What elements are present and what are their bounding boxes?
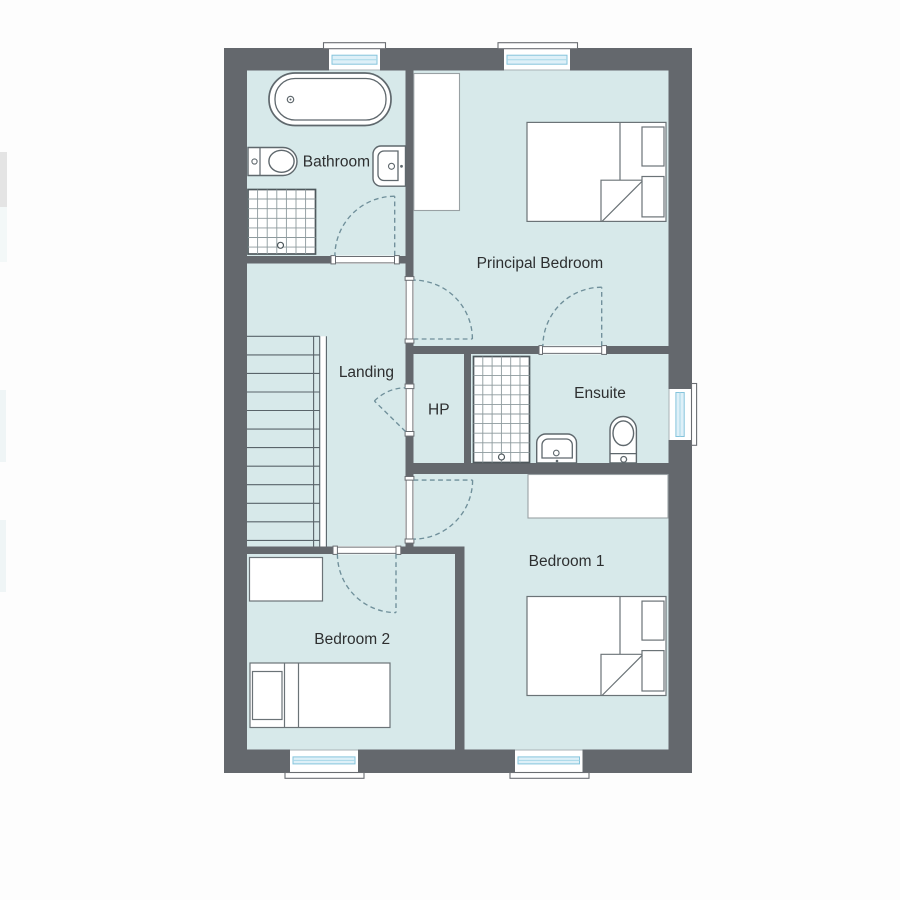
svg-text:HP: HP [428, 402, 450, 419]
svg-text:Bathroom: Bathroom [303, 154, 370, 171]
svg-text:Principal Bedroom: Principal Bedroom [477, 255, 604, 272]
svg-text:Landing: Landing [339, 364, 394, 381]
svg-text:Bedroom 1: Bedroom 1 [529, 553, 605, 570]
svg-text:Bedroom 2: Bedroom 2 [314, 631, 390, 648]
svg-text:Ensuite: Ensuite [574, 385, 626, 402]
